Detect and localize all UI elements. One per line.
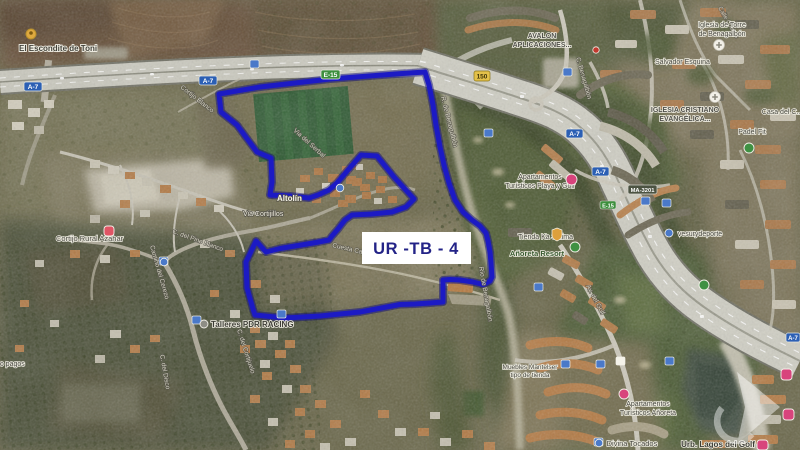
svg-text:IGLESIA CRISTIANO: IGLESIA CRISTIANO bbox=[651, 107, 720, 114]
svg-text:A-7: A-7 bbox=[203, 78, 214, 85]
svg-text:Apartamentos: Apartamentos bbox=[626, 401, 670, 408]
svg-text:Altolín: Altolín bbox=[277, 194, 302, 203]
svg-text:tipo de tienda: tipo de tienda bbox=[510, 372, 549, 379]
svg-text:Divina Tocados: Divina Tocados bbox=[607, 439, 658, 448]
svg-text:UR -TB - 4: UR -TB - 4 bbox=[373, 240, 459, 258]
svg-text:de Benagalbón: de Benagalbón bbox=[698, 31, 745, 38]
svg-text:A-7: A-7 bbox=[595, 169, 606, 176]
svg-text:E-15: E-15 bbox=[602, 203, 614, 209]
svg-text:...o pagos: ...o pagos bbox=[0, 361, 25, 368]
svg-text:Turísticos Añoreta: Turísticos Añoreta bbox=[620, 410, 676, 417]
svg-text:Iglesia de Torre: Iglesia de Torre bbox=[698, 22, 746, 29]
svg-text:Via Cortijillos: Via Cortijillos bbox=[243, 211, 284, 218]
svg-text:Casa del C...: Casa del C... bbox=[762, 109, 800, 116]
svg-text:EVANGÉLICA...: EVANGÉLICA... bbox=[659, 114, 710, 123]
svg-text:APLICACIONES...: APLICACIONES... bbox=[513, 42, 572, 49]
svg-text:MA-3201: MA-3201 bbox=[631, 188, 656, 194]
svg-text:E-15: E-15 bbox=[324, 72, 338, 79]
svg-text:Padel Fit: Padel Fit bbox=[738, 129, 766, 136]
svg-text:Añoreta Resort: Añoreta Resort bbox=[510, 249, 565, 258]
svg-text:A-7: A-7 bbox=[788, 336, 798, 342]
svg-text:Turísticos Playa y Golf: Turísticos Playa y Golf bbox=[505, 183, 575, 190]
svg-text:Apartamentos: Apartamentos bbox=[518, 174, 562, 181]
svg-text:Muebles Mantelser: Muebles Mantelser bbox=[503, 364, 559, 371]
svg-text:A-7: A-7 bbox=[28, 84, 39, 91]
svg-text:El Escondite de Toni: El Escondite de Toni bbox=[19, 44, 97, 53]
svg-text:150: 150 bbox=[477, 74, 488, 81]
svg-text:Salvador Esquina: Salvador Esquina bbox=[655, 59, 710, 66]
svg-text:vesurydeporte: vesurydeporte bbox=[678, 231, 722, 238]
svg-text:AVALON: AVALON bbox=[528, 33, 557, 40]
svg-text:Talleres PDR RACING: Talleres PDR RACING bbox=[211, 320, 294, 329]
svg-text:Tienda Ka Salima: Tienda Ka Salima bbox=[518, 234, 573, 241]
svg-text:A-7: A-7 bbox=[569, 131, 580, 138]
